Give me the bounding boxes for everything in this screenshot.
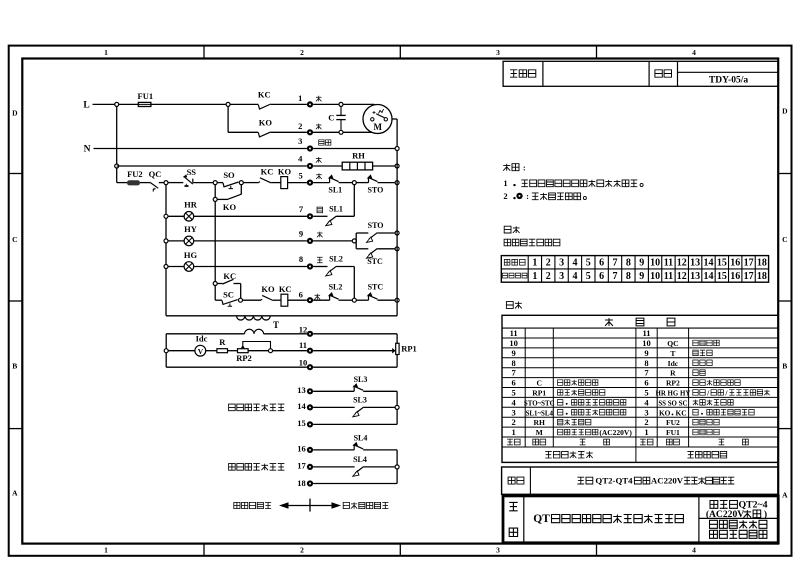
- svg-text:4: 4: [298, 154, 303, 164]
- svg-text:8: 8: [626, 271, 631, 282]
- svg-text:D: D: [12, 109, 18, 118]
- svg-text:N: N: [84, 145, 91, 155]
- svg-text:T: T: [670, 349, 675, 358]
- svg-text:5: 5: [644, 387, 648, 397]
- svg-text:9: 9: [639, 258, 644, 269]
- svg-text:3: 3: [511, 407, 515, 417]
- svg-text:FU2: FU2: [127, 169, 143, 179]
- svg-text:7: 7: [613, 258, 618, 269]
- svg-text:SL4: SL4: [354, 434, 368, 443]
- svg-text:11: 11: [299, 340, 307, 350]
- svg-text:4: 4: [692, 48, 696, 57]
- svg-text:SL3: SL3: [353, 396, 367, 405]
- svg-text:7: 7: [613, 271, 618, 282]
- svg-text:RP1: RP1: [401, 343, 417, 353]
- svg-text:3: 3: [496, 48, 500, 57]
- svg-text:KO: KO: [223, 202, 237, 212]
- svg-text:HR: HR: [184, 199, 198, 209]
- svg-text:1: 1: [104, 546, 108, 555]
- svg-text:11: 11: [643, 328, 651, 338]
- svg-text:15: 15: [297, 418, 306, 428]
- svg-text:KC: KC: [258, 90, 271, 100]
- svg-text:SS SO SC: SS SO SC: [658, 400, 687, 407]
- svg-text:(AC220V: (AC220V: [706, 509, 744, 520]
- svg-text:Idc: Idc: [196, 334, 208, 344]
- svg-text:16: 16: [297, 443, 306, 453]
- svg-text:5: 5: [298, 170, 302, 180]
- svg-text:10: 10: [509, 338, 518, 348]
- svg-text:1: 1: [532, 258, 537, 269]
- svg-text:HG: HG: [184, 250, 198, 260]
- svg-text:KC: KC: [279, 284, 292, 294]
- svg-text:18: 18: [757, 271, 767, 282]
- svg-text:8: 8: [299, 254, 303, 264]
- svg-text:3: 3: [559, 258, 564, 269]
- svg-text:10: 10: [650, 271, 660, 282]
- svg-text:SL1: SL1: [329, 204, 343, 213]
- svg-text:2: 2: [503, 191, 507, 201]
- svg-text:RP2: RP2: [666, 379, 680, 388]
- svg-text:16: 16: [730, 258, 740, 269]
- svg-text:R: R: [670, 369, 676, 378]
- svg-text:6: 6: [644, 378, 648, 388]
- svg-text:FU1: FU1: [666, 428, 680, 437]
- svg-text:2: 2: [546, 271, 551, 282]
- svg-text:KO: KO: [261, 284, 275, 294]
- svg-text:SC: SC: [223, 290, 234, 300]
- svg-text:L: L: [83, 100, 89, 110]
- svg-text:A: A: [782, 491, 788, 500]
- svg-text:KC: KC: [676, 408, 687, 417]
- svg-text:1: 1: [503, 178, 507, 188]
- svg-text:HY: HY: [184, 224, 197, 234]
- svg-text:4: 4: [572, 271, 577, 282]
- svg-text:8: 8: [644, 358, 648, 368]
- svg-text:15: 15: [717, 271, 727, 282]
- svg-text:16: 16: [730, 271, 740, 282]
- svg-text:(AC220V): (AC220V): [599, 428, 632, 437]
- svg-text:13: 13: [690, 271, 700, 282]
- svg-text:11: 11: [664, 258, 673, 269]
- svg-text:2: 2: [546, 258, 551, 269]
- svg-text:HR HG HY: HR HG HY: [655, 390, 690, 397]
- svg-text:T: T: [273, 320, 279, 330]
- svg-text:1: 1: [104, 48, 108, 57]
- svg-text:QC: QC: [149, 169, 162, 179]
- svg-text:SL4: SL4: [353, 455, 367, 464]
- svg-text:Idc: Idc: [668, 359, 679, 368]
- svg-text:B: B: [12, 362, 17, 371]
- svg-text:17: 17: [744, 258, 754, 269]
- svg-text:10: 10: [299, 357, 308, 367]
- svg-text:2: 2: [300, 546, 304, 555]
- svg-text:12: 12: [299, 324, 308, 334]
- svg-text:9: 9: [299, 228, 303, 238]
- svg-text:9: 9: [511, 348, 515, 358]
- svg-text:KO: KO: [659, 408, 671, 417]
- svg-text:2: 2: [644, 417, 648, 427]
- svg-text:5: 5: [511, 387, 515, 397]
- svg-text:KO: KO: [259, 118, 273, 128]
- svg-text:3: 3: [559, 271, 564, 282]
- svg-text:18: 18: [757, 258, 767, 269]
- svg-text:RP2: RP2: [236, 353, 252, 363]
- svg-text:AC220V: AC220V: [651, 476, 684, 486]
- svg-text:1: 1: [298, 93, 302, 103]
- svg-text:15: 15: [717, 258, 727, 269]
- svg-text:17: 17: [744, 271, 754, 282]
- svg-text:C: C: [782, 235, 787, 244]
- svg-text:C: C: [537, 379, 542, 388]
- svg-text:13: 13: [297, 385, 306, 395]
- svg-text:QT2-QT4: QT2-QT4: [595, 476, 633, 486]
- svg-text:6: 6: [599, 258, 604, 269]
- svg-text::: :: [526, 191, 529, 201]
- svg-text:1: 1: [532, 271, 537, 282]
- svg-text:SL1~SL4: SL1~SL4: [526, 410, 554, 417]
- svg-text:8: 8: [626, 258, 631, 269]
- svg-text:1: 1: [511, 427, 515, 437]
- svg-text:2: 2: [511, 417, 515, 427]
- svg-text:11: 11: [664, 271, 673, 282]
- svg-text:7: 7: [644, 368, 649, 378]
- svg-text:KC: KC: [223, 271, 236, 281]
- svg-text:STC: STC: [368, 282, 384, 291]
- svg-text:3: 3: [298, 136, 302, 146]
- svg-text:8: 8: [511, 358, 515, 368]
- svg-text:A: A: [12, 489, 18, 498]
- svg-text:4: 4: [511, 397, 516, 407]
- svg-text:3: 3: [496, 546, 500, 555]
- svg-text:RH: RH: [352, 150, 365, 160]
- svg-text:SL2: SL2: [329, 255, 343, 264]
- svg-text:2: 2: [298, 121, 302, 131]
- svg-text:11: 11: [510, 328, 518, 338]
- svg-text:KO: KO: [278, 167, 292, 177]
- svg-text:5: 5: [586, 258, 591, 269]
- svg-text:M: M: [536, 428, 543, 437]
- svg-text:4: 4: [644, 397, 649, 407]
- svg-text:FU2: FU2: [666, 418, 680, 427]
- svg-text:C: C: [12, 235, 17, 244]
- svg-text:B: B: [782, 362, 787, 371]
- svg-text:M: M: [373, 122, 382, 132]
- svg-text:4: 4: [692, 546, 696, 555]
- svg-text:9: 9: [639, 271, 644, 282]
- svg-text:SL1: SL1: [328, 186, 342, 195]
- svg-text:6: 6: [511, 378, 515, 388]
- svg-text:12: 12: [677, 258, 687, 269]
- svg-text:SS: SS: [187, 167, 197, 177]
- svg-text:RH: RH: [534, 418, 545, 427]
- svg-text:SO: SO: [223, 170, 235, 180]
- svg-text:3: 3: [644, 407, 648, 417]
- svg-text:9: 9: [644, 348, 648, 358]
- svg-text:STO~STC: STO~STC: [524, 400, 555, 407]
- svg-text:D: D: [782, 107, 788, 116]
- svg-text:4: 4: [572, 258, 577, 269]
- svg-text:14: 14: [297, 401, 306, 411]
- svg-text:1: 1: [644, 427, 648, 437]
- svg-text:14: 14: [704, 271, 714, 282]
- svg-text:STC: STC: [367, 257, 383, 266]
- svg-text:7: 7: [511, 368, 516, 378]
- svg-text:RP1: RP1: [532, 388, 546, 397]
- svg-text:14: 14: [704, 258, 714, 269]
- svg-text:13: 13: [690, 258, 700, 269]
- svg-text:R: R: [219, 337, 226, 347]
- svg-text:STO: STO: [367, 186, 383, 195]
- svg-text:5: 5: [586, 271, 591, 282]
- svg-text:V: V: [198, 347, 204, 356]
- svg-text:18: 18: [297, 478, 306, 488]
- svg-text:6: 6: [599, 271, 604, 282]
- svg-text:QT: QT: [533, 513, 550, 525]
- svg-text:SL3: SL3: [354, 375, 368, 384]
- svg-text:QC: QC: [667, 339, 678, 348]
- svg-text:17: 17: [297, 460, 306, 470]
- svg-text::: :: [523, 163, 526, 173]
- svg-text:10: 10: [650, 258, 660, 269]
- svg-text:10: 10: [642, 338, 651, 348]
- svg-text:12: 12: [677, 271, 687, 282]
- svg-text:C: C: [328, 112, 334, 122]
- svg-text:FU1: FU1: [138, 91, 154, 101]
- svg-text:KC: KC: [261, 167, 274, 177]
- svg-text:2: 2: [300, 48, 304, 57]
- svg-text:TDY-05/a: TDY-05/a: [709, 76, 748, 86]
- svg-text:SL2: SL2: [329, 282, 343, 291]
- svg-text:): ): [764, 509, 767, 520]
- svg-text:STO: STO: [368, 221, 384, 230]
- svg-text:6: 6: [299, 290, 303, 300]
